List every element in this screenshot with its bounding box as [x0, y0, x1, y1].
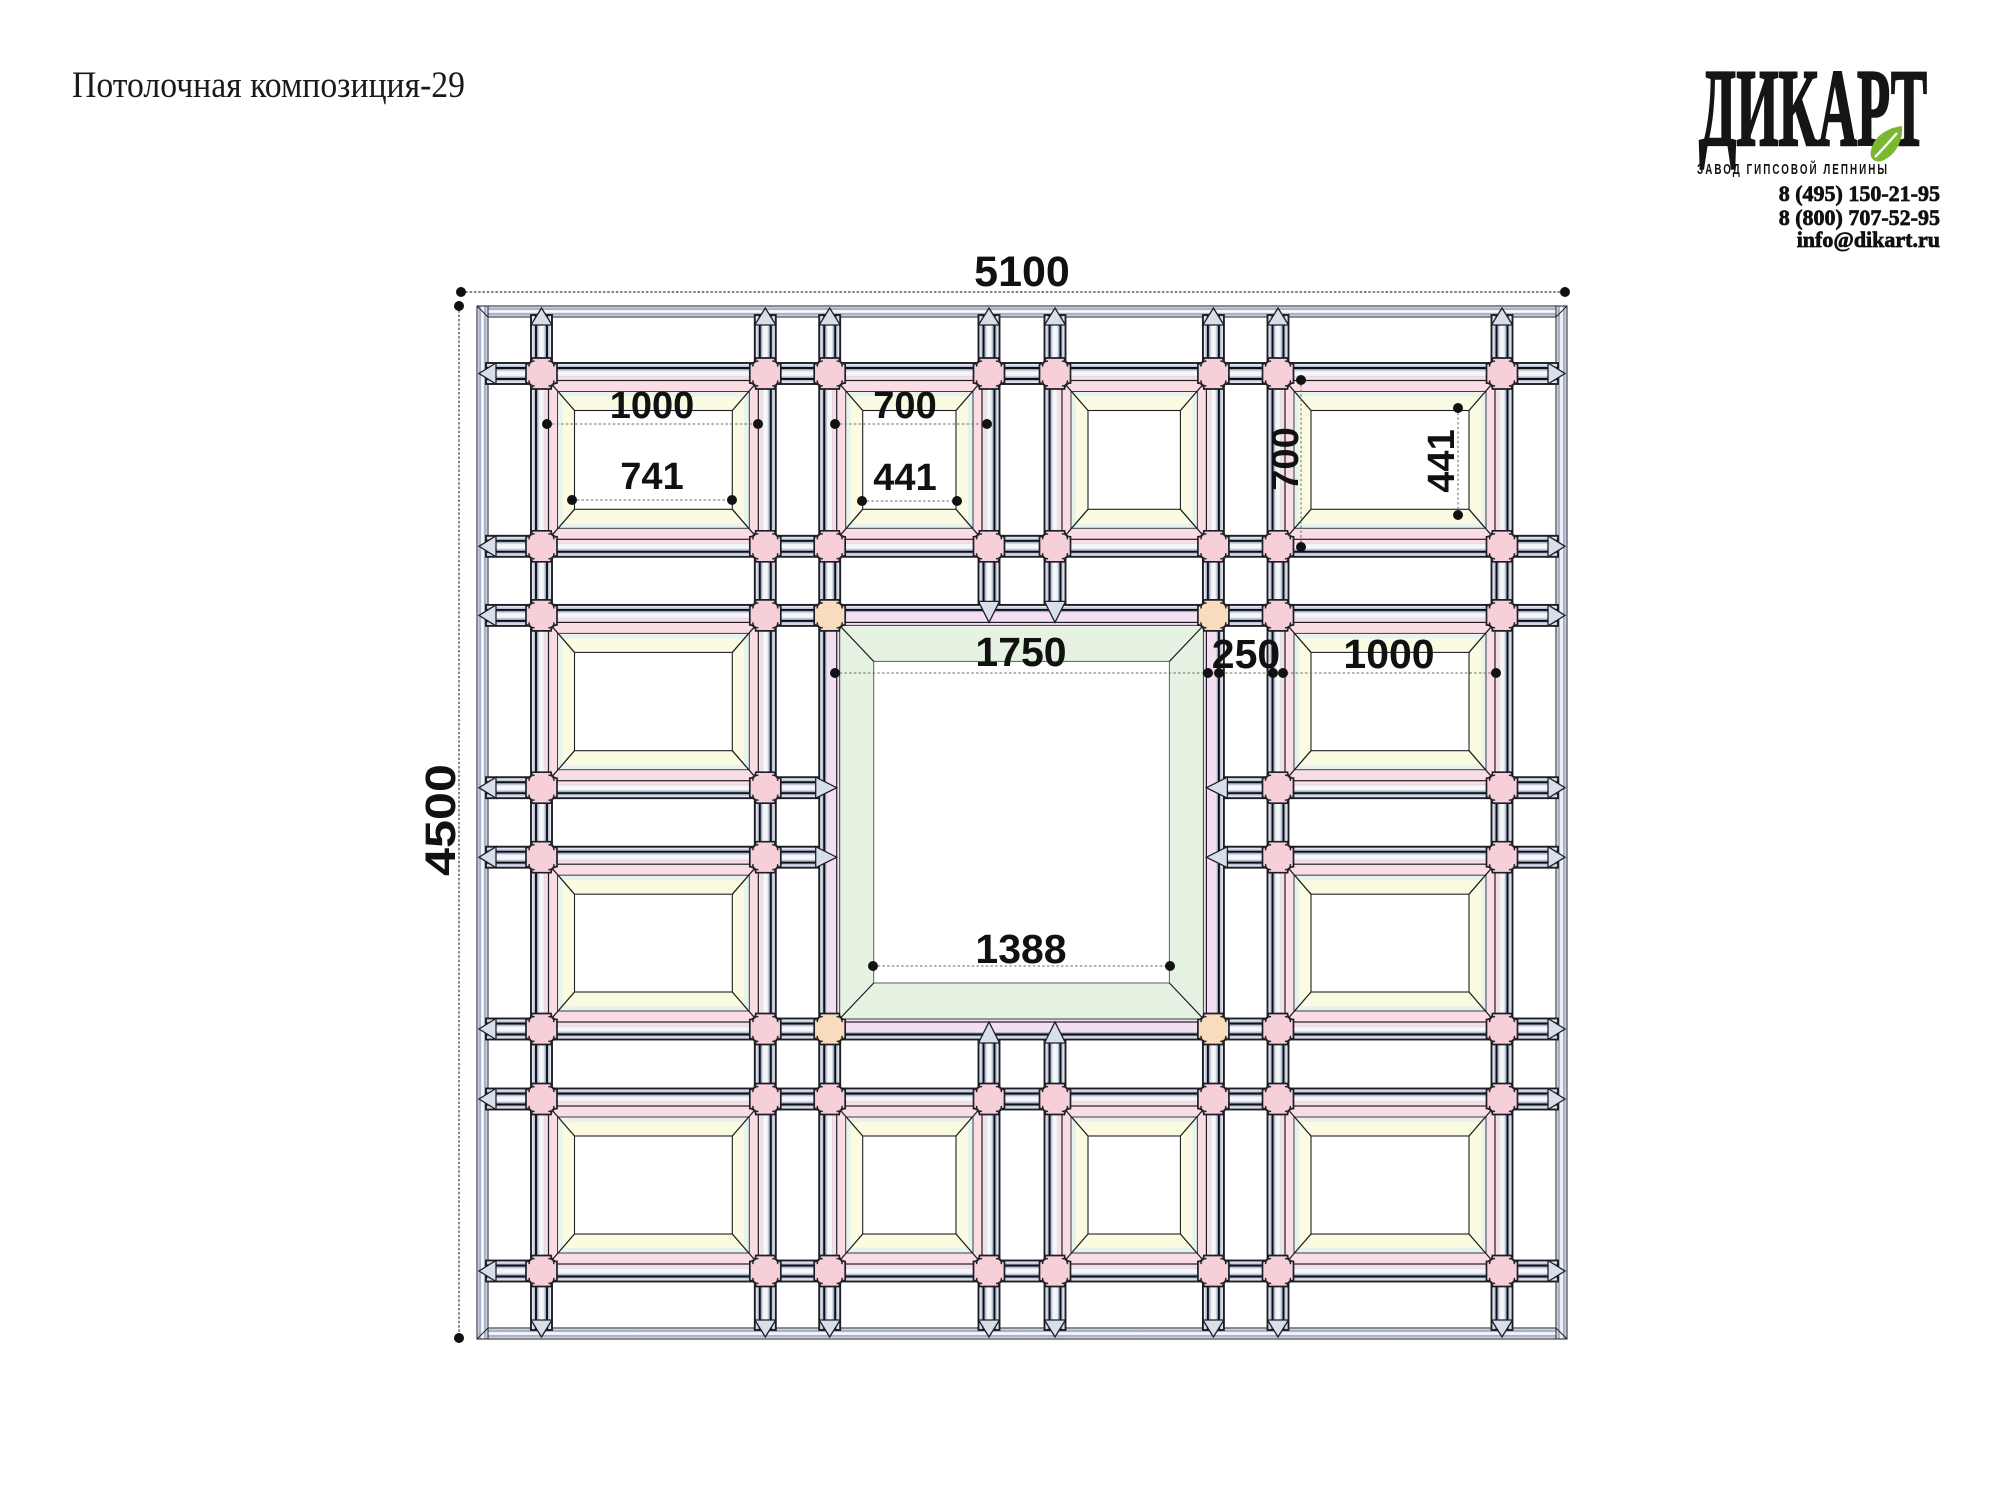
svg-text:info@dikart.ru: info@dikart.ru [1797, 227, 1940, 252]
svg-text:8 (495) 150-21-95: 8 (495) 150-21-95 [1779, 181, 1940, 206]
svg-text:ЗАВОД ГИПСОВОЙ ЛЕПНИНЫ: ЗАВОД ГИПСОВОЙ ЛЕПНИНЫ [1697, 160, 1889, 178]
svg-text:Потолочная композиция-29: Потолочная композиция-29 [72, 65, 465, 106]
svg-text:1000: 1000 [610, 385, 695, 427]
svg-text:1750: 1750 [975, 629, 1066, 675]
svg-text:250: 250 [1212, 631, 1280, 677]
svg-text:1000: 1000 [1343, 631, 1434, 677]
svg-text:441: 441 [1421, 429, 1463, 492]
svg-text:1388: 1388 [975, 926, 1066, 972]
svg-text:441: 441 [873, 457, 936, 499]
svg-text:700: 700 [873, 385, 936, 427]
svg-text:741: 741 [620, 456, 683, 498]
svg-text:5100: 5100 [974, 248, 1070, 296]
svg-text:4500: 4500 [417, 764, 465, 876]
svg-text:700: 700 [1265, 427, 1307, 490]
